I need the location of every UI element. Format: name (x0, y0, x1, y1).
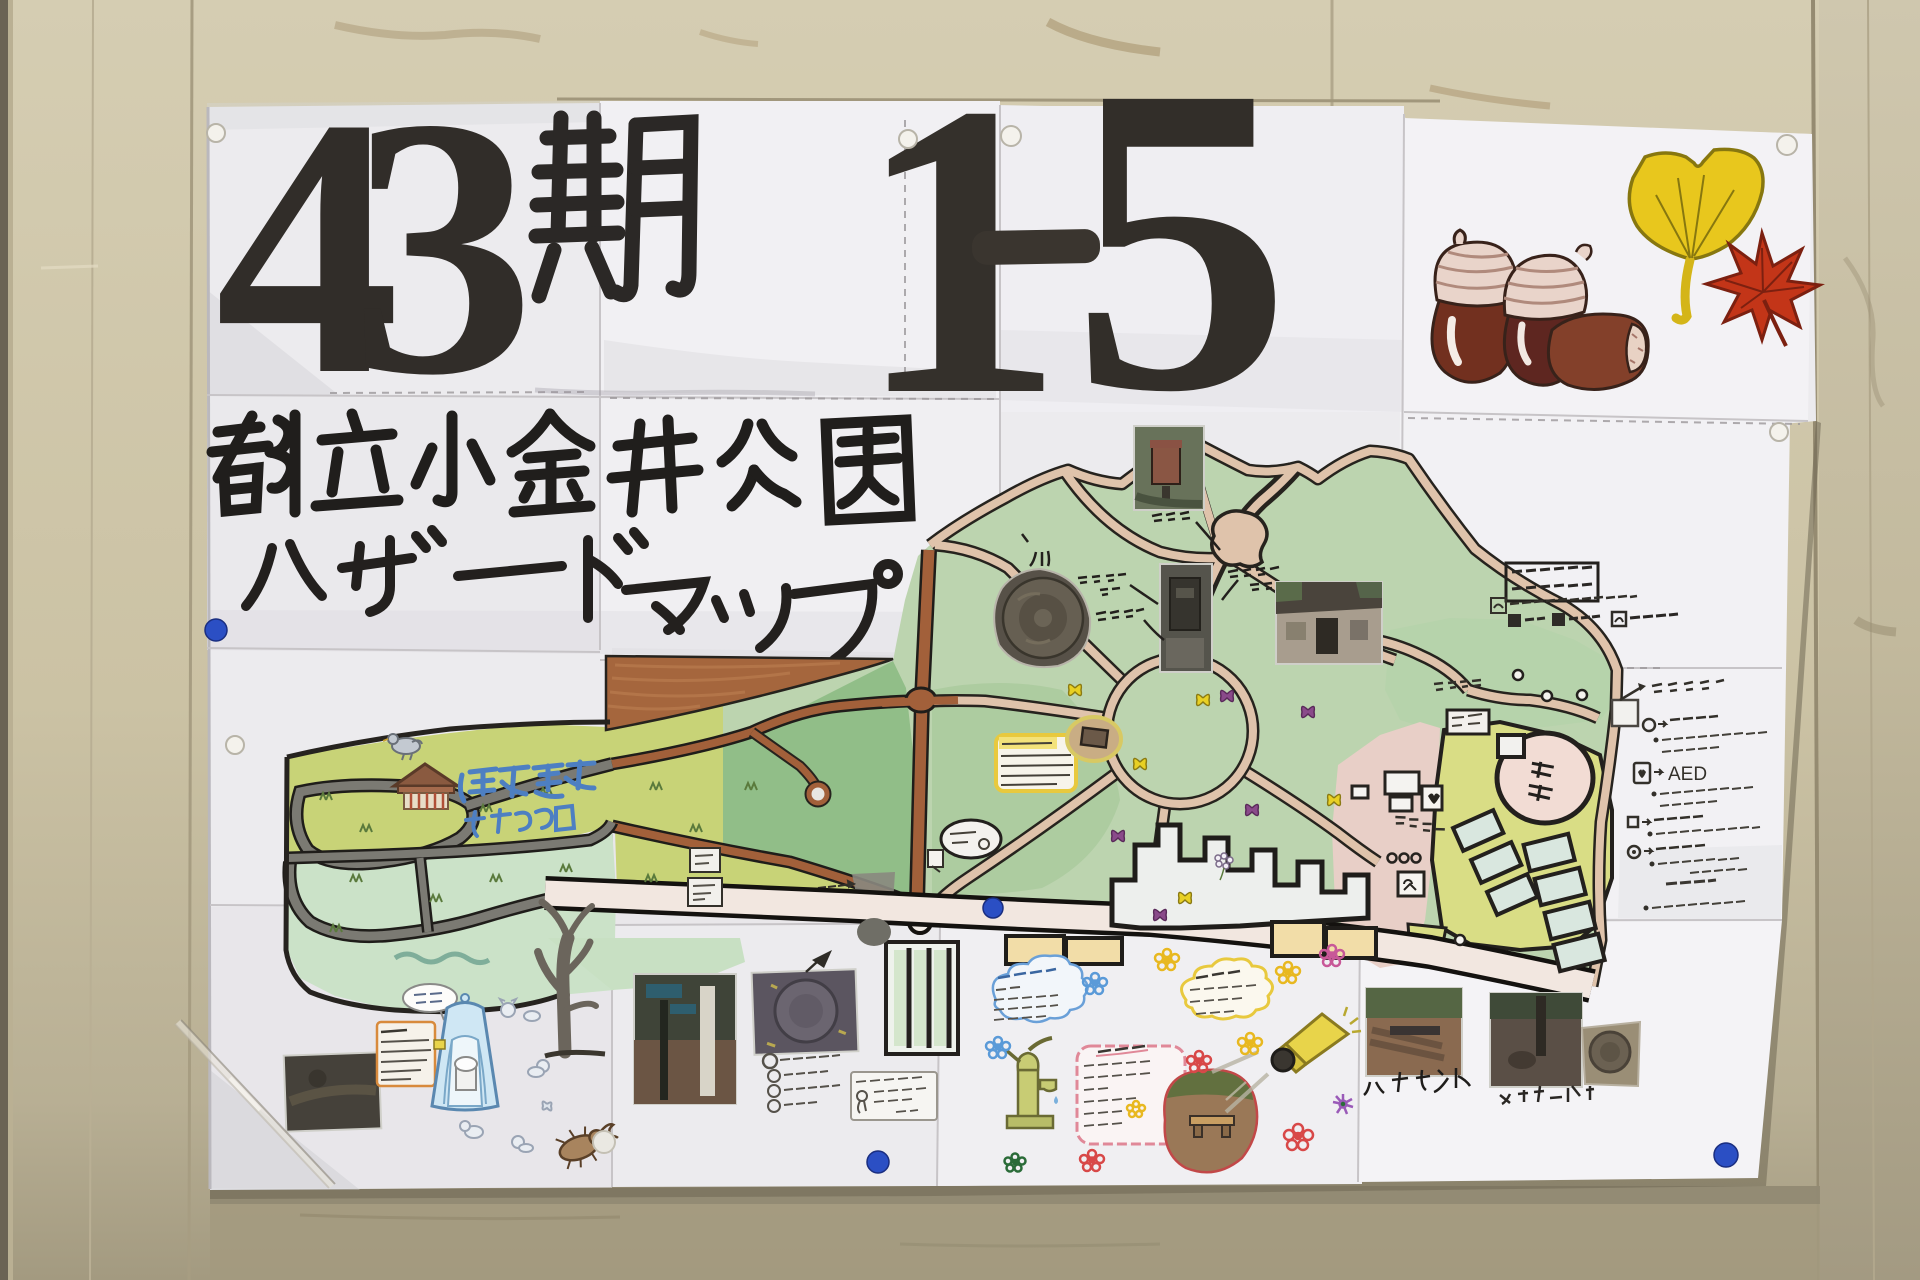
svg-text:AED: AED (1668, 764, 1707, 785)
svg-text:43: 43 (215, 42, 523, 452)
svg-text:5: 5 (1071, 0, 1291, 483)
